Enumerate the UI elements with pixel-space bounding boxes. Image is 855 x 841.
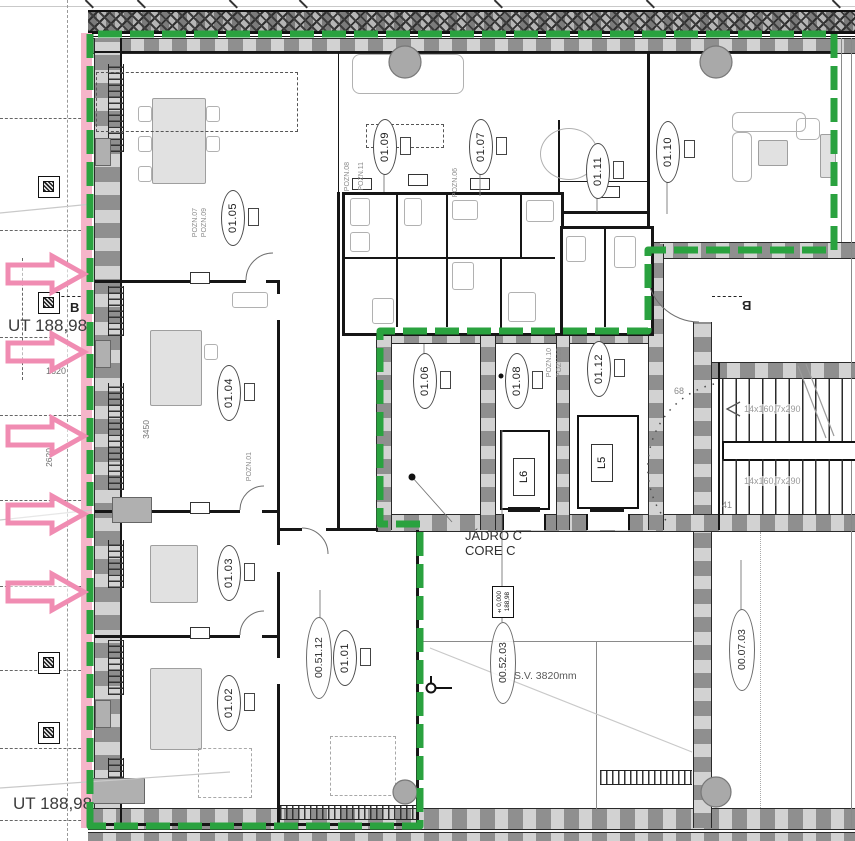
fixture [350,198,370,226]
note-pozn: POZN.10 [546,348,553,377]
dimension-tick [137,0,146,8]
room-label-01-12: 01.12 [587,341,611,397]
floor-joint [596,641,597,811]
dimension-tick [494,0,503,8]
radiator-hatch [108,640,124,695]
wall [604,229,606,327]
site-line [0,118,86,119]
core-name-en: CORE C [465,543,555,558]
room-label-01-06: 01.06 [413,353,437,409]
fixture [508,292,536,322]
door-tag [190,502,210,514]
furniture-cabinet [150,545,198,603]
furniture-table [150,668,202,750]
wall [345,257,555,259]
room-sub-tag [496,137,507,155]
facade-line [88,31,855,32]
furniture-sofa [732,132,752,182]
fixture [372,298,394,324]
level-mark-line1: ±0,000 [496,591,503,614]
fixture [614,236,636,268]
zone-label-00-51-12: 00.51.12 [306,617,332,699]
column-symbol [38,652,60,674]
site-line [0,820,86,821]
pier [95,138,111,166]
dimension-tick [646,0,655,8]
core-name: JÁDRO C CORE C [465,528,555,558]
floor-grille [280,805,417,820]
wall-stairs-bottom [648,514,855,532]
pink-arrow [8,334,84,370]
section-line [712,296,742,297]
ceiling-height-text: S.V. 3820mm [514,670,577,682]
fixture [404,198,422,226]
wall [94,51,835,53]
pier [95,700,111,728]
wall [277,572,280,658]
wall [337,192,340,530]
wall [95,280,246,283]
level-mark-box: ±0,000 188,98 [492,586,514,618]
pier [112,497,152,523]
dimension-tick [85,0,94,8]
fixture [350,232,370,252]
room-sub-tag [244,693,255,711]
furniture-sofa [732,112,806,132]
dimension-tick [299,0,308,8]
door-tag [408,174,428,186]
room-sub-tag [440,371,451,389]
note-pozn: POZN.13 [556,348,563,377]
wall-corridor-right [693,322,712,828]
ceiling-zone [96,72,298,132]
floor-plan-canvas: UT 188,98 UT 188,98 B B 1620 2620 3450 [0,0,855,841]
furniture-armchair [796,118,820,140]
floor-joint [422,641,692,642]
site-line [0,230,86,231]
room-sub-tag [248,208,259,226]
dim-2620: 2620 [44,448,54,467]
fixture [452,262,474,290]
site-line [67,0,68,841]
room-label-01-03: 01.03 [217,545,241,601]
grid-line [841,38,842,242]
pink-arrow [8,496,84,532]
dimension-line-top [0,6,855,7]
stair-shaft-wall [718,362,720,530]
wall [558,211,650,214]
zone-label-00-52-03: 00.52.03 [490,622,516,704]
radiator-hatch [108,286,124,336]
room-label-01-09: 01.09 [373,119,397,175]
room-label-01-07: 01.07 [469,119,493,175]
furniture-cabinet [232,292,268,308]
door-tag [190,627,210,639]
stair-step-number-bottom: 41 [722,500,732,510]
pier [95,340,111,368]
wall [95,823,420,826]
furniture-chair [204,344,218,360]
site-line [0,500,86,501]
pier [90,778,145,804]
stair-flight-lower [722,459,855,514]
elevator-door [590,507,624,512]
room-sub-tag [684,140,695,158]
note-pozn: POZN.06 [452,168,459,197]
lift-door-opening [586,514,630,530]
room-label-01-04: 01.04 [217,365,241,421]
room-label-01-11: 01.11 [586,143,610,199]
wall [647,52,650,244]
room-label-01-10: 01.10 [656,121,680,183]
dim-3450: 3450 [141,420,151,439]
dimension-tick [229,0,238,8]
wall [277,280,280,294]
pink-highlight-band [81,33,92,828]
facade-line [88,36,855,37]
wall [416,530,419,824]
section-mark-b-right: B [742,298,751,313]
room-label-01-02: 01.02 [217,675,241,731]
dotted-line [760,532,761,808]
room-label-01-08: 01.08 [505,353,529,409]
wall-stairs-top [712,362,855,379]
note-pozn: POZN.09 [201,208,208,237]
room-sub-tag [613,161,624,179]
dim-1620: 1620 [46,366,66,376]
wall [396,195,398,327]
dimension-tick [832,0,841,8]
furniture-table [758,140,788,166]
room-label-01-01: 01.01 [333,630,357,686]
radiator-hatch [108,383,124,490]
note-pozn: POZN.01 [246,452,253,481]
elevator-door [508,507,540,512]
furniture-sofa [352,54,464,94]
stair-run-upper: 14x160,7x290 [744,404,801,414]
wall [446,195,448,327]
door-tag [190,272,210,284]
wall [500,258,502,328]
level-text-upper: UT 188,98 [8,316,87,336]
note-pozn: POZN.11 [358,162,365,191]
valve-symbol [427,676,453,693]
furniture-table [150,330,202,406]
radiator-hatch [108,540,124,588]
furniture-chair [138,166,152,182]
room-label-01-05: 01.05 [221,190,245,246]
site-line [0,586,86,587]
section-mark-b-left: B [70,300,79,315]
site-line [0,415,86,416]
site-line [0,337,62,338]
note-pozn: POZN.08 [344,162,351,191]
room-sub-tag [244,383,255,401]
wall [277,320,280,545]
stair-landing [722,441,855,461]
wall [95,635,240,638]
pink-arrow [8,574,84,610]
wall-bottom-outer [88,832,855,841]
room-sub-tag [400,137,411,155]
wall [326,528,378,531]
elevator-label-l6: L6 [513,458,535,496]
core-wall-left [376,328,392,530]
wall-bottom-exterior [88,808,855,830]
wall [338,52,339,192]
column-symbol [38,722,60,744]
core-wall-mid1 [480,328,496,530]
furniture-chair [206,136,220,152]
room-sub-tag [244,563,255,581]
fixture [452,200,478,220]
room-sub-tag [614,359,625,377]
core-name-local: JÁDRO C [465,528,555,543]
wall-right-top-band [645,242,855,259]
door-tag [470,178,490,190]
column-symbol [38,176,60,198]
floor-grille [600,770,692,785]
level-text-lower: UT 188,98 [13,794,92,814]
room-sub-tag [532,371,543,389]
furniture-dashed [330,736,396,796]
wall [280,528,302,531]
zone-label-00-07-03: 00.07.03 [729,609,755,691]
elevator-label-l5: L5 [591,444,613,482]
stair-step-number-top: 68 [674,386,684,396]
note-pozn: POZN.07 [192,208,199,237]
fixture [566,236,586,262]
furniture-desk [820,134,836,178]
wall [520,195,522,258]
fixture [526,200,554,222]
room-sub-tag [360,648,371,666]
level-mark-line2: 188,98 [504,592,511,611]
stair-run-lower: 14x160,7x290 [744,476,801,486]
furniture-dashed [198,748,252,798]
furniture-chair [138,136,152,152]
site-line [0,748,86,749]
column-symbol [38,292,60,314]
pink-arrow [8,256,84,292]
